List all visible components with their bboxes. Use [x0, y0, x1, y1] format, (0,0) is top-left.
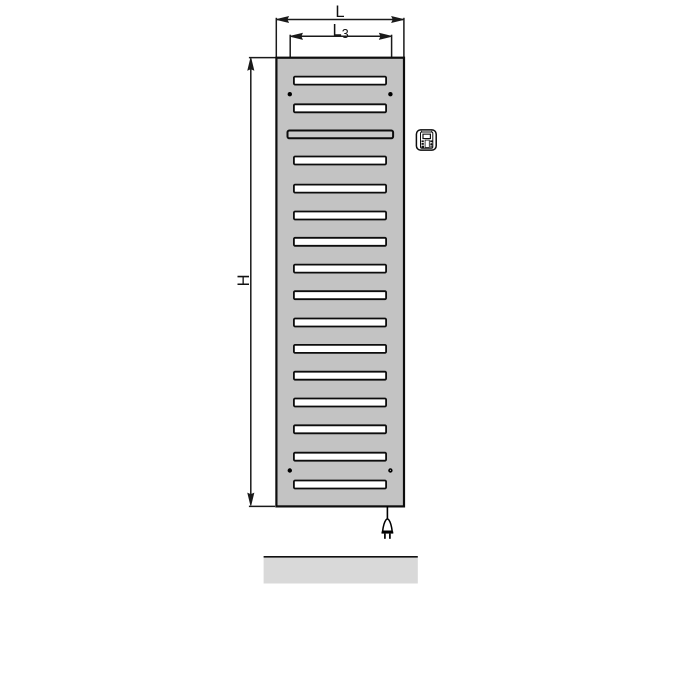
svg-text:L: L: [335, 3, 344, 21]
svg-text:L3: L3: [333, 22, 349, 41]
